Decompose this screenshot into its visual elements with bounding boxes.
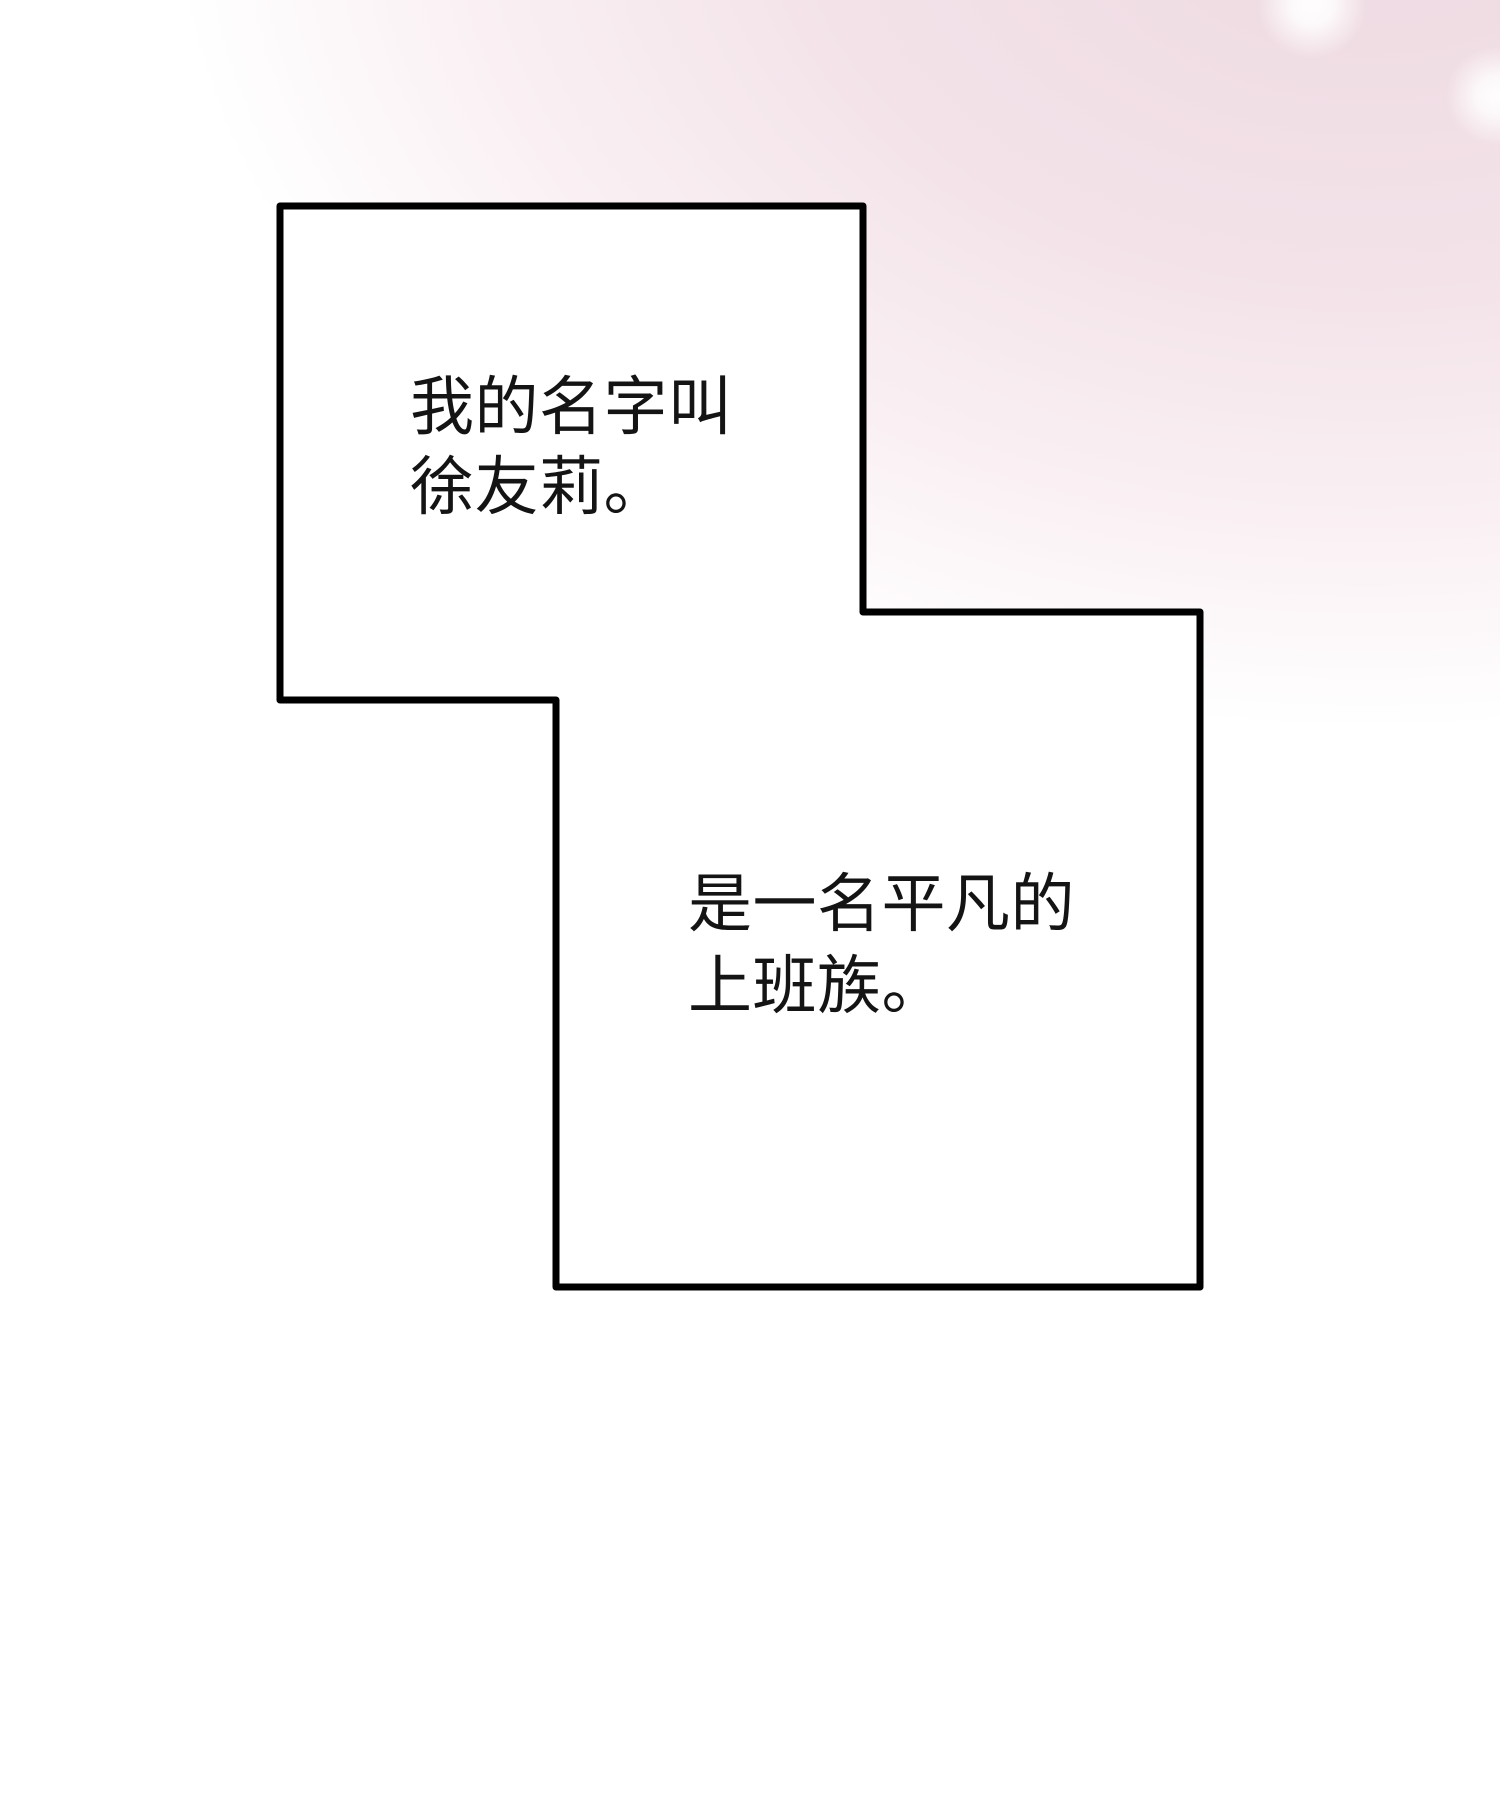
- narration-1-line-1: 我的名字叫: [410, 368, 733, 448]
- narration-1-line-2: 徐友莉。: [410, 448, 733, 528]
- comic-page: 我的名字叫 徐友莉。 是一名平凡的 上班族。: [0, 0, 1500, 1812]
- narration-box-2: 是一名平凡的 上班族。: [688, 864, 1075, 1028]
- narration-box-1: 我的名字叫 徐友莉。: [410, 368, 733, 528]
- narration-2-line-1: 是一名平凡的: [688, 864, 1075, 946]
- narration-2-line-2: 上班族。: [688, 946, 1075, 1028]
